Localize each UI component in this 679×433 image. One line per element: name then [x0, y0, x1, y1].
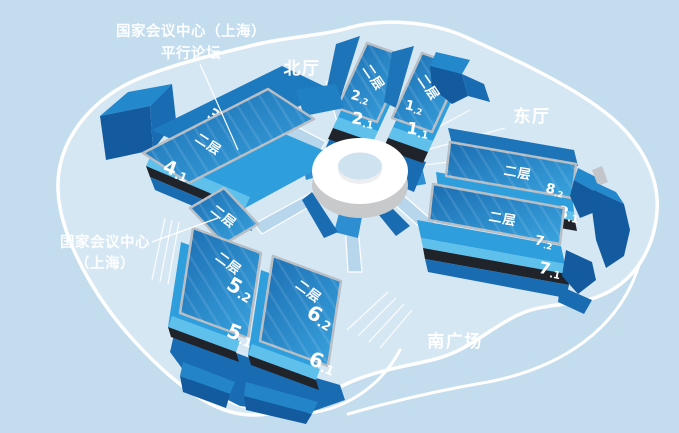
east-hall-label: 东厅: [514, 106, 551, 127]
necc-venue-map: 3 二层 4.1 二层 8.1: [0, 0, 679, 433]
forum-annotation-line1: 国家会议中心（上海）: [116, 22, 266, 40]
north-hall-label: 北厅: [284, 59, 321, 79]
ring-hole: [338, 153, 382, 180]
necc-annotation-line2: （上海）: [75, 254, 135, 272]
necc-annotation-line1: 国家会议中心: [60, 233, 150, 251]
south-plaza-label: 南广场: [427, 331, 483, 352]
map-canvas: 3 二层 4.1 二层 8.1: [0, 0, 679, 433]
central-ring: [312, 138, 408, 218]
forum-annotation-line2: 平行论坛: [161, 44, 221, 62]
